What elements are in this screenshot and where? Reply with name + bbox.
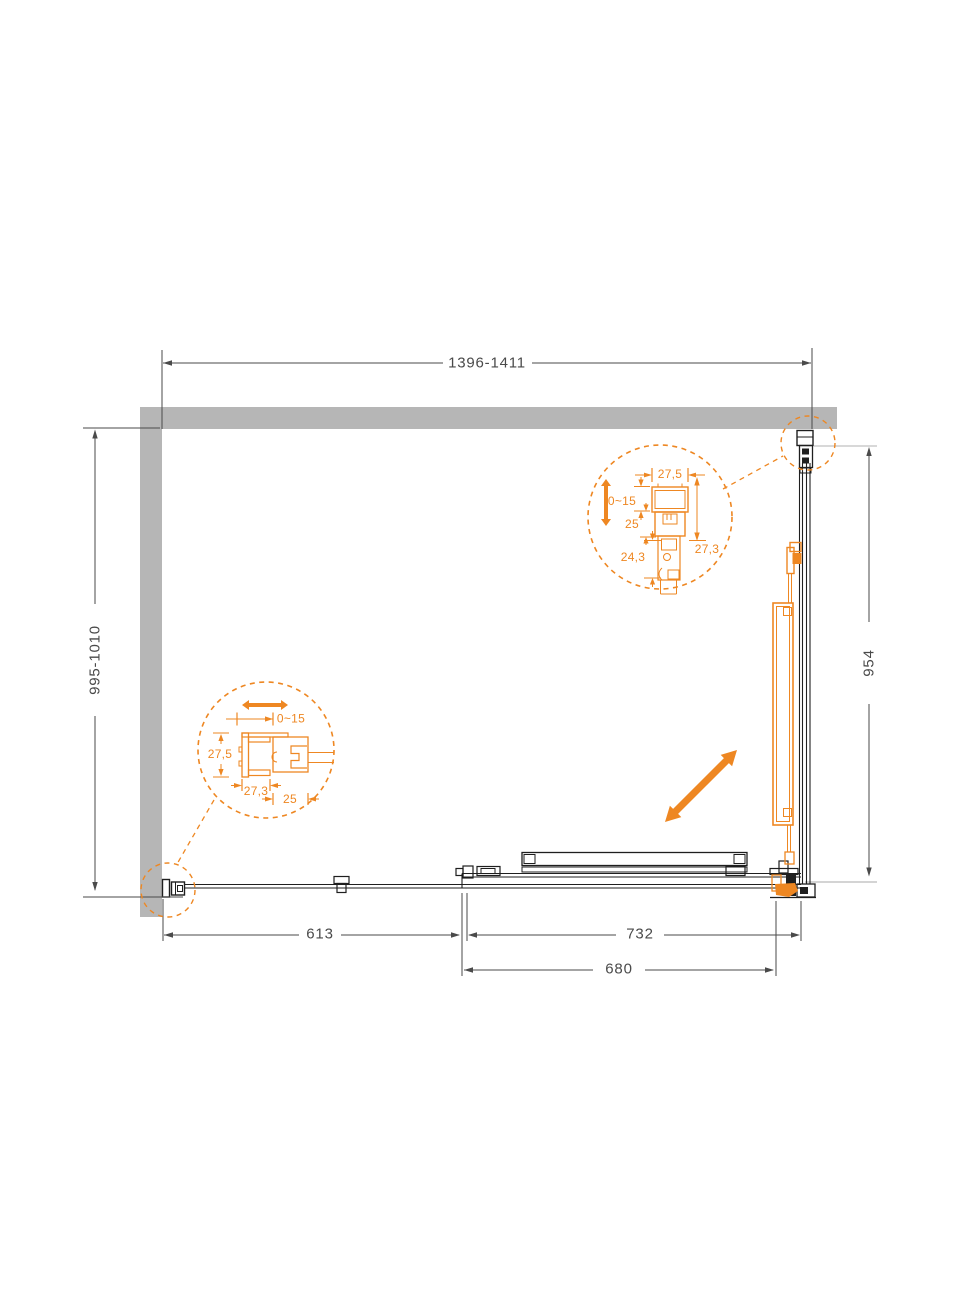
detail-callout-top-right: 27,5 0~15 (588, 416, 835, 594)
detail-bl-height-label: 27,5 (208, 747, 233, 761)
dim-left-height: 995-1010 (83, 428, 183, 897)
right-door-panel (772, 543, 802, 898)
adjust-arrow-horizontal (242, 700, 288, 710)
slide-direction-arrow (665, 750, 737, 822)
detail-bl-profile (239, 733, 334, 777)
dim-right-height: 954 (861, 447, 878, 877)
detail-tr-width-label: 27,5 (658, 467, 683, 481)
bottom-track-assembly (163, 853, 802, 898)
dim-bottom-right-label: 732 (626, 926, 653, 943)
detail-bl-adjust-label: 0~15 (277, 712, 305, 726)
wall-top (140, 407, 837, 429)
wall-profile-top-right (797, 431, 813, 474)
dim-right-height-label: 954 (861, 649, 878, 676)
detail-tr-profile (652, 484, 688, 595)
detail-bl-inner-label: 25 (283, 792, 297, 806)
dim-bottom: 613 732 680 (163, 893, 801, 978)
dim-door-width-label: 680 (605, 961, 632, 978)
wall-left (140, 407, 162, 917)
wall-profile-bottom-left (163, 880, 185, 898)
dim-left-height-label: 995-1010 (87, 625, 104, 695)
detail-bl-width-label: 27,3 (244, 784, 269, 798)
detail-tr-glass-label: 24,3 (621, 550, 646, 564)
diagram-canvas: 1396-1411 995-1010 954 613 732 (0, 0, 975, 1300)
detail-tr-adjust-label: 0~15 (608, 494, 636, 508)
dim-top-width-label: 1396-1411 (448, 355, 526, 372)
detail-tr-inner-label: 25 (625, 517, 639, 531)
sliding-door-panel (522, 853, 747, 873)
dim-bottom-left-label: 613 (306, 926, 333, 943)
detail-tr-depth-label: 27,3 (695, 542, 720, 556)
shower-enclosure-technical-drawing: 1396-1411 995-1010 954 613 732 (0, 0, 975, 1300)
